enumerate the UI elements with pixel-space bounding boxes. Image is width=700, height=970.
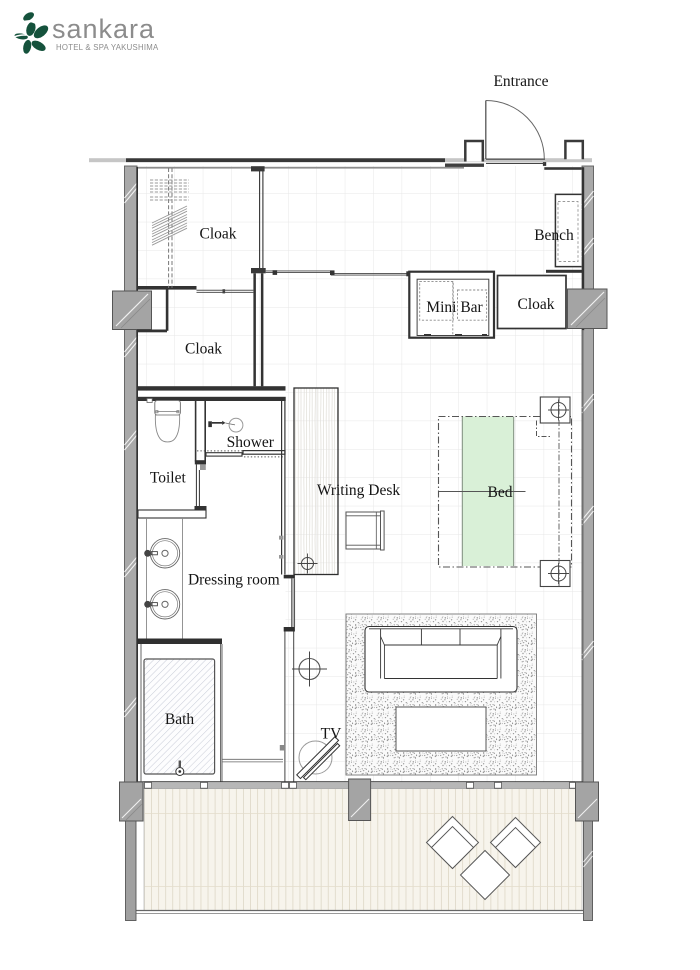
svg-text:Cloak: Cloak bbox=[185, 341, 222, 358]
svg-text:Toilet: Toilet bbox=[150, 470, 187, 487]
svg-text:Mini Bar: Mini Bar bbox=[426, 299, 483, 316]
svg-text:Dressing room: Dressing room bbox=[188, 572, 280, 589]
svg-text:sankara: sankara bbox=[52, 14, 155, 44]
svg-text:Bath: Bath bbox=[165, 711, 195, 728]
svg-text:Bench: Bench bbox=[534, 227, 574, 244]
svg-text:Shower: Shower bbox=[227, 434, 275, 451]
svg-text:Cloak: Cloak bbox=[199, 226, 236, 243]
svg-text:Cloak: Cloak bbox=[517, 296, 554, 313]
svg-text:TV: TV bbox=[321, 726, 342, 743]
svg-text:Writing Desk: Writing Desk bbox=[317, 482, 401, 499]
svg-text:HOTEL & SPA YAKUSHIMA: HOTEL & SPA YAKUSHIMA bbox=[56, 43, 159, 52]
svg-text:Bed: Bed bbox=[488, 484, 513, 501]
svg-text:Entrance: Entrance bbox=[493, 73, 548, 90]
